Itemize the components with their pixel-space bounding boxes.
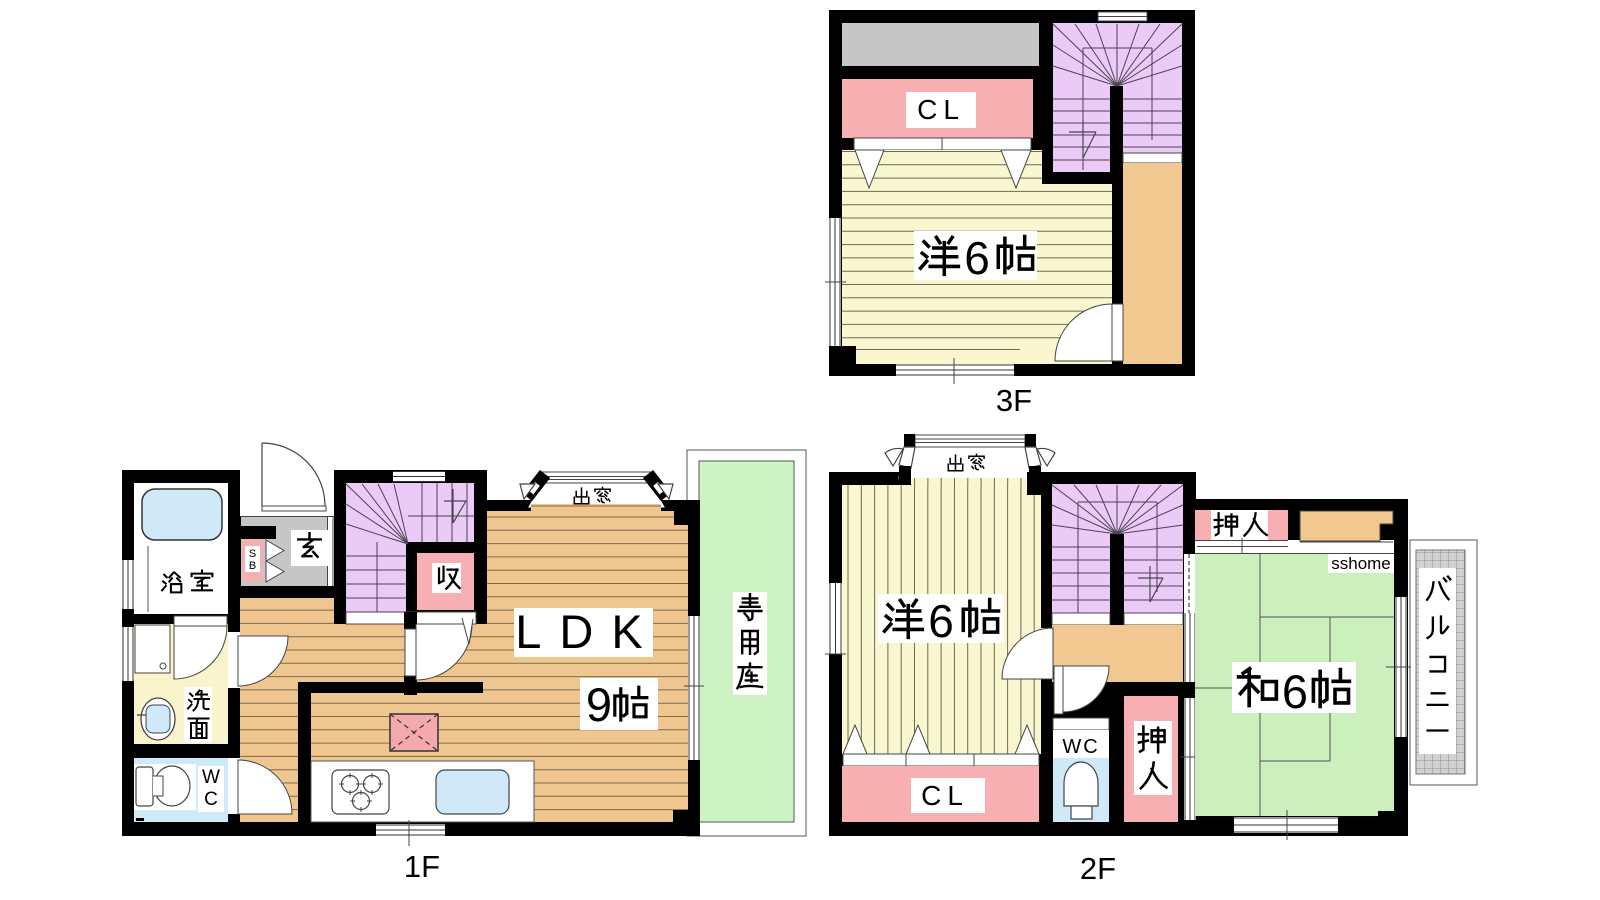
svg-text:6: 6 xyxy=(964,232,990,284)
svg-text:9: 9 xyxy=(586,678,612,731)
svg-text:1F: 1F xyxy=(404,849,440,884)
svg-text:W: W xyxy=(202,767,220,788)
svg-text:LDK: LDK xyxy=(515,605,660,658)
svg-text:C: C xyxy=(204,789,218,810)
svg-text:3F: 3F xyxy=(996,383,1032,418)
svg-text:B: B xyxy=(249,560,256,572)
svg-text:sshome: sshome xyxy=(1331,554,1391,573)
svg-text:6: 6 xyxy=(928,595,954,647)
svg-text:6: 6 xyxy=(1282,665,1308,718)
svg-text:CL: CL xyxy=(921,780,969,811)
svg-text:CL: CL xyxy=(917,94,965,125)
svg-text:WC: WC xyxy=(1062,736,1099,758)
svg-text:S: S xyxy=(249,548,256,560)
svg-text:2F: 2F xyxy=(1080,851,1116,886)
